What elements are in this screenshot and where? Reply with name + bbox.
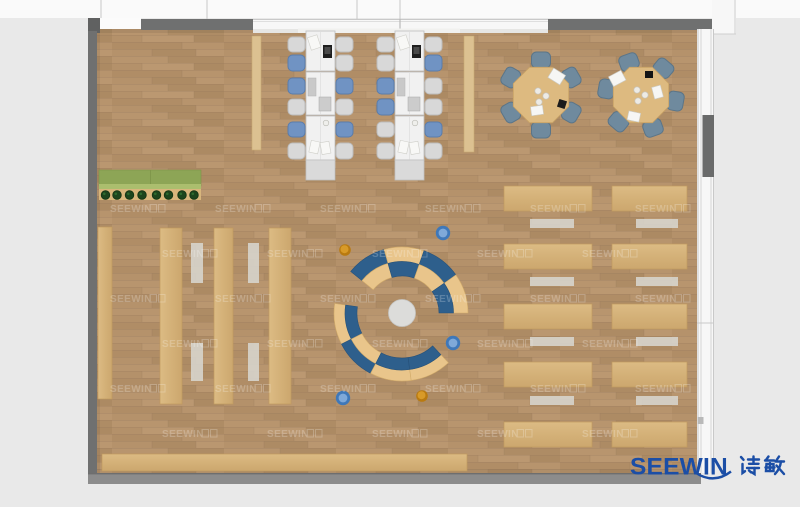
- svg-text:SEEWIN: SEEWIN: [267, 249, 309, 260]
- svg-text:SEEWIN: SEEWIN: [162, 429, 204, 440]
- svg-text:SEEWIN: SEEWIN: [320, 294, 362, 305]
- svg-text:SEEWIN: SEEWIN: [215, 294, 257, 305]
- svg-text:SEEWIN: SEEWIN: [635, 384, 677, 395]
- svg-text:SEEWIN: SEEWIN: [477, 249, 519, 260]
- svg-text:SEEWIN: SEEWIN: [110, 294, 152, 305]
- svg-text:SEEWIN: SEEWIN: [530, 384, 572, 395]
- svg-text:SEEWIN: SEEWIN: [372, 249, 414, 260]
- svg-text:SEEWIN: SEEWIN: [425, 294, 467, 305]
- svg-text:SEEWIN: SEEWIN: [320, 384, 362, 395]
- svg-text:SEEWIN: SEEWIN: [215, 204, 257, 215]
- svg-text:SEEWIN: SEEWIN: [320, 204, 362, 215]
- svg-text:SEEWIN: SEEWIN: [162, 339, 204, 350]
- svg-text:SEEWIN: SEEWIN: [372, 339, 414, 350]
- svg-text:SEEWIN: SEEWIN: [162, 249, 204, 260]
- svg-text:SEEWIN: SEEWIN: [635, 294, 677, 305]
- svg-text:SEEWIN: SEEWIN: [267, 429, 309, 440]
- svg-text:SEEWIN: SEEWIN: [477, 429, 519, 440]
- svg-text:SEEWIN: SEEWIN: [582, 249, 624, 260]
- svg-text:SEEWIN: SEEWIN: [477, 339, 519, 350]
- svg-text:SEEWIN: SEEWIN: [110, 384, 152, 395]
- svg-text:SEEWIN: SEEWIN: [630, 454, 728, 481]
- svg-text:SEEWIN: SEEWIN: [267, 339, 309, 350]
- svg-text:SEEWIN: SEEWIN: [582, 429, 624, 440]
- svg-text:SEEWIN: SEEWIN: [110, 204, 152, 215]
- svg-text:SEEWIN: SEEWIN: [425, 384, 467, 395]
- svg-text:SEEWIN: SEEWIN: [372, 429, 414, 440]
- svg-text:SEEWIN: SEEWIN: [582, 339, 624, 350]
- svg-text:SEEWIN: SEEWIN: [215, 384, 257, 395]
- svg-text:SEEWIN: SEEWIN: [425, 204, 467, 215]
- svg-text:SEEWIN: SEEWIN: [635, 204, 677, 215]
- svg-text:SEEWIN: SEEWIN: [530, 294, 572, 305]
- svg-text:SEEWIN: SEEWIN: [530, 204, 572, 215]
